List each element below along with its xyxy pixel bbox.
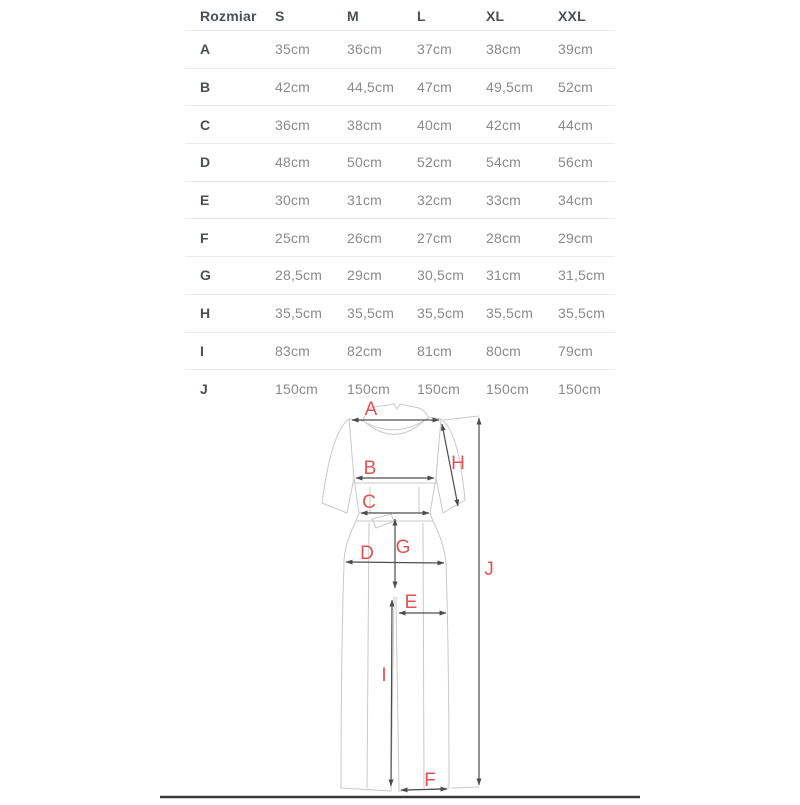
label-b: B: [364, 458, 377, 479]
measure-value: 35,5cm: [558, 305, 615, 321]
measure-value: 36cm: [275, 117, 347, 133]
measure-value: 44cm: [558, 117, 615, 133]
row-label: E: [185, 192, 275, 208]
measure-value: 52cm: [558, 79, 615, 95]
measure-value: 30cm: [275, 192, 347, 208]
label-e: E: [405, 592, 418, 613]
label-c: C: [362, 492, 376, 513]
measure-value: 30,5cm: [417, 267, 486, 283]
measurement-labels: A B C D E F G H I J: [360, 399, 494, 791]
measure-value: 42cm: [486, 117, 558, 133]
garment-measurement-diagram: A B C D E F G H I J: [0, 395, 800, 800]
table-row: B 42cm 44,5cm 47cm 49,5cm 52cm: [185, 69, 615, 107]
measure-value: 38cm: [486, 41, 558, 57]
row-label: D: [185, 154, 275, 170]
measure-value: 35cm: [275, 41, 347, 57]
label-h: H: [451, 453, 465, 474]
size-column-title: Rozmiar: [185, 8, 275, 24]
measure-value: 36cm: [347, 41, 417, 57]
measure-value: 49,5cm: [486, 79, 558, 95]
col-header-l: L: [417, 8, 486, 24]
row-label: A: [185, 41, 275, 57]
col-header-s: S: [275, 8, 347, 24]
row-label: C: [185, 117, 275, 133]
measure-value: 27cm: [417, 230, 486, 246]
measure-value: 52cm: [417, 154, 486, 170]
size-table-header-row: Rozmiar S M L XL XXL: [185, 2, 615, 31]
row-label: I: [185, 343, 275, 359]
label-j: J: [484, 559, 494, 580]
measure-value: 37cm: [417, 41, 486, 57]
measure-value: 82cm: [347, 343, 417, 359]
measure-value: 38cm: [347, 117, 417, 133]
row-label: G: [185, 267, 275, 283]
measure-value: 31,5cm: [558, 267, 615, 283]
measure-value: 28,5cm: [275, 267, 347, 283]
measure-value: 31cm: [486, 267, 558, 283]
measure-value: 35,5cm: [417, 305, 486, 321]
measure-value: 80cm: [486, 343, 558, 359]
table-row: D 48cm 50cm 52cm 54cm 56cm: [185, 144, 615, 182]
row-label: F: [185, 230, 275, 246]
col-header-xxl: XXL: [558, 8, 615, 24]
measure-value: 47cm: [417, 79, 486, 95]
measure-value: 31cm: [347, 192, 417, 208]
col-header-xl: XL: [486, 8, 558, 24]
label-i: I: [381, 665, 386, 686]
measure-value: 79cm: [558, 343, 615, 359]
measure-value: 35,5cm: [486, 305, 558, 321]
measure-value: 40cm: [417, 117, 486, 133]
measure-value: 44,5cm: [347, 79, 417, 95]
table-row: C 36cm 38cm 40cm 42cm 44cm: [185, 106, 615, 144]
measure-value: 34cm: [558, 192, 615, 208]
table-row: G 28,5cm 29cm 30,5cm 31cm 31,5cm: [185, 257, 615, 295]
measure-value: 35,5cm: [347, 305, 417, 321]
size-table: Rozmiar S M L XL XXL A 35cm 36cm 37cm 38…: [185, 2, 615, 407]
measure-value: 33cm: [486, 192, 558, 208]
table-row: F 25cm 26cm 27cm 28cm 29cm: [185, 219, 615, 257]
table-row: H 35,5cm 35,5cm 35,5cm 35,5cm 35,5cm: [185, 295, 615, 333]
table-row: I 83cm 82cm 81cm 80cm 79cm: [185, 333, 615, 371]
row-label: B: [185, 79, 275, 95]
label-f: F: [424, 770, 436, 791]
table-row: A 35cm 36cm 37cm 38cm 39cm: [185, 31, 615, 69]
measure-value: 26cm: [347, 230, 417, 246]
row-label: H: [185, 305, 275, 321]
label-a: A: [365, 399, 378, 420]
measure-value: 29cm: [558, 230, 615, 246]
measure-value: 29cm: [347, 267, 417, 283]
table-row: E 30cm 31cm 32cm 33cm 34cm: [185, 182, 615, 220]
measure-value: 28cm: [486, 230, 558, 246]
label-g: G: [396, 537, 411, 558]
jumpsuit-schematic: A B C D E F G H I J: [0, 395, 800, 800]
label-d: D: [360, 543, 374, 564]
measure-value: 56cm: [558, 154, 615, 170]
measure-value: 32cm: [417, 192, 486, 208]
measure-value: 35,5cm: [275, 305, 347, 321]
measure-value: 50cm: [347, 154, 417, 170]
measure-value: 83cm: [275, 343, 347, 359]
measure-value: 81cm: [417, 343, 486, 359]
measure-value: 25cm: [275, 230, 347, 246]
measure-value: 39cm: [558, 41, 615, 57]
measure-value: 54cm: [486, 154, 558, 170]
col-header-m: M: [347, 8, 417, 24]
measure-value: 42cm: [275, 79, 347, 95]
measure-value: 48cm: [275, 154, 347, 170]
